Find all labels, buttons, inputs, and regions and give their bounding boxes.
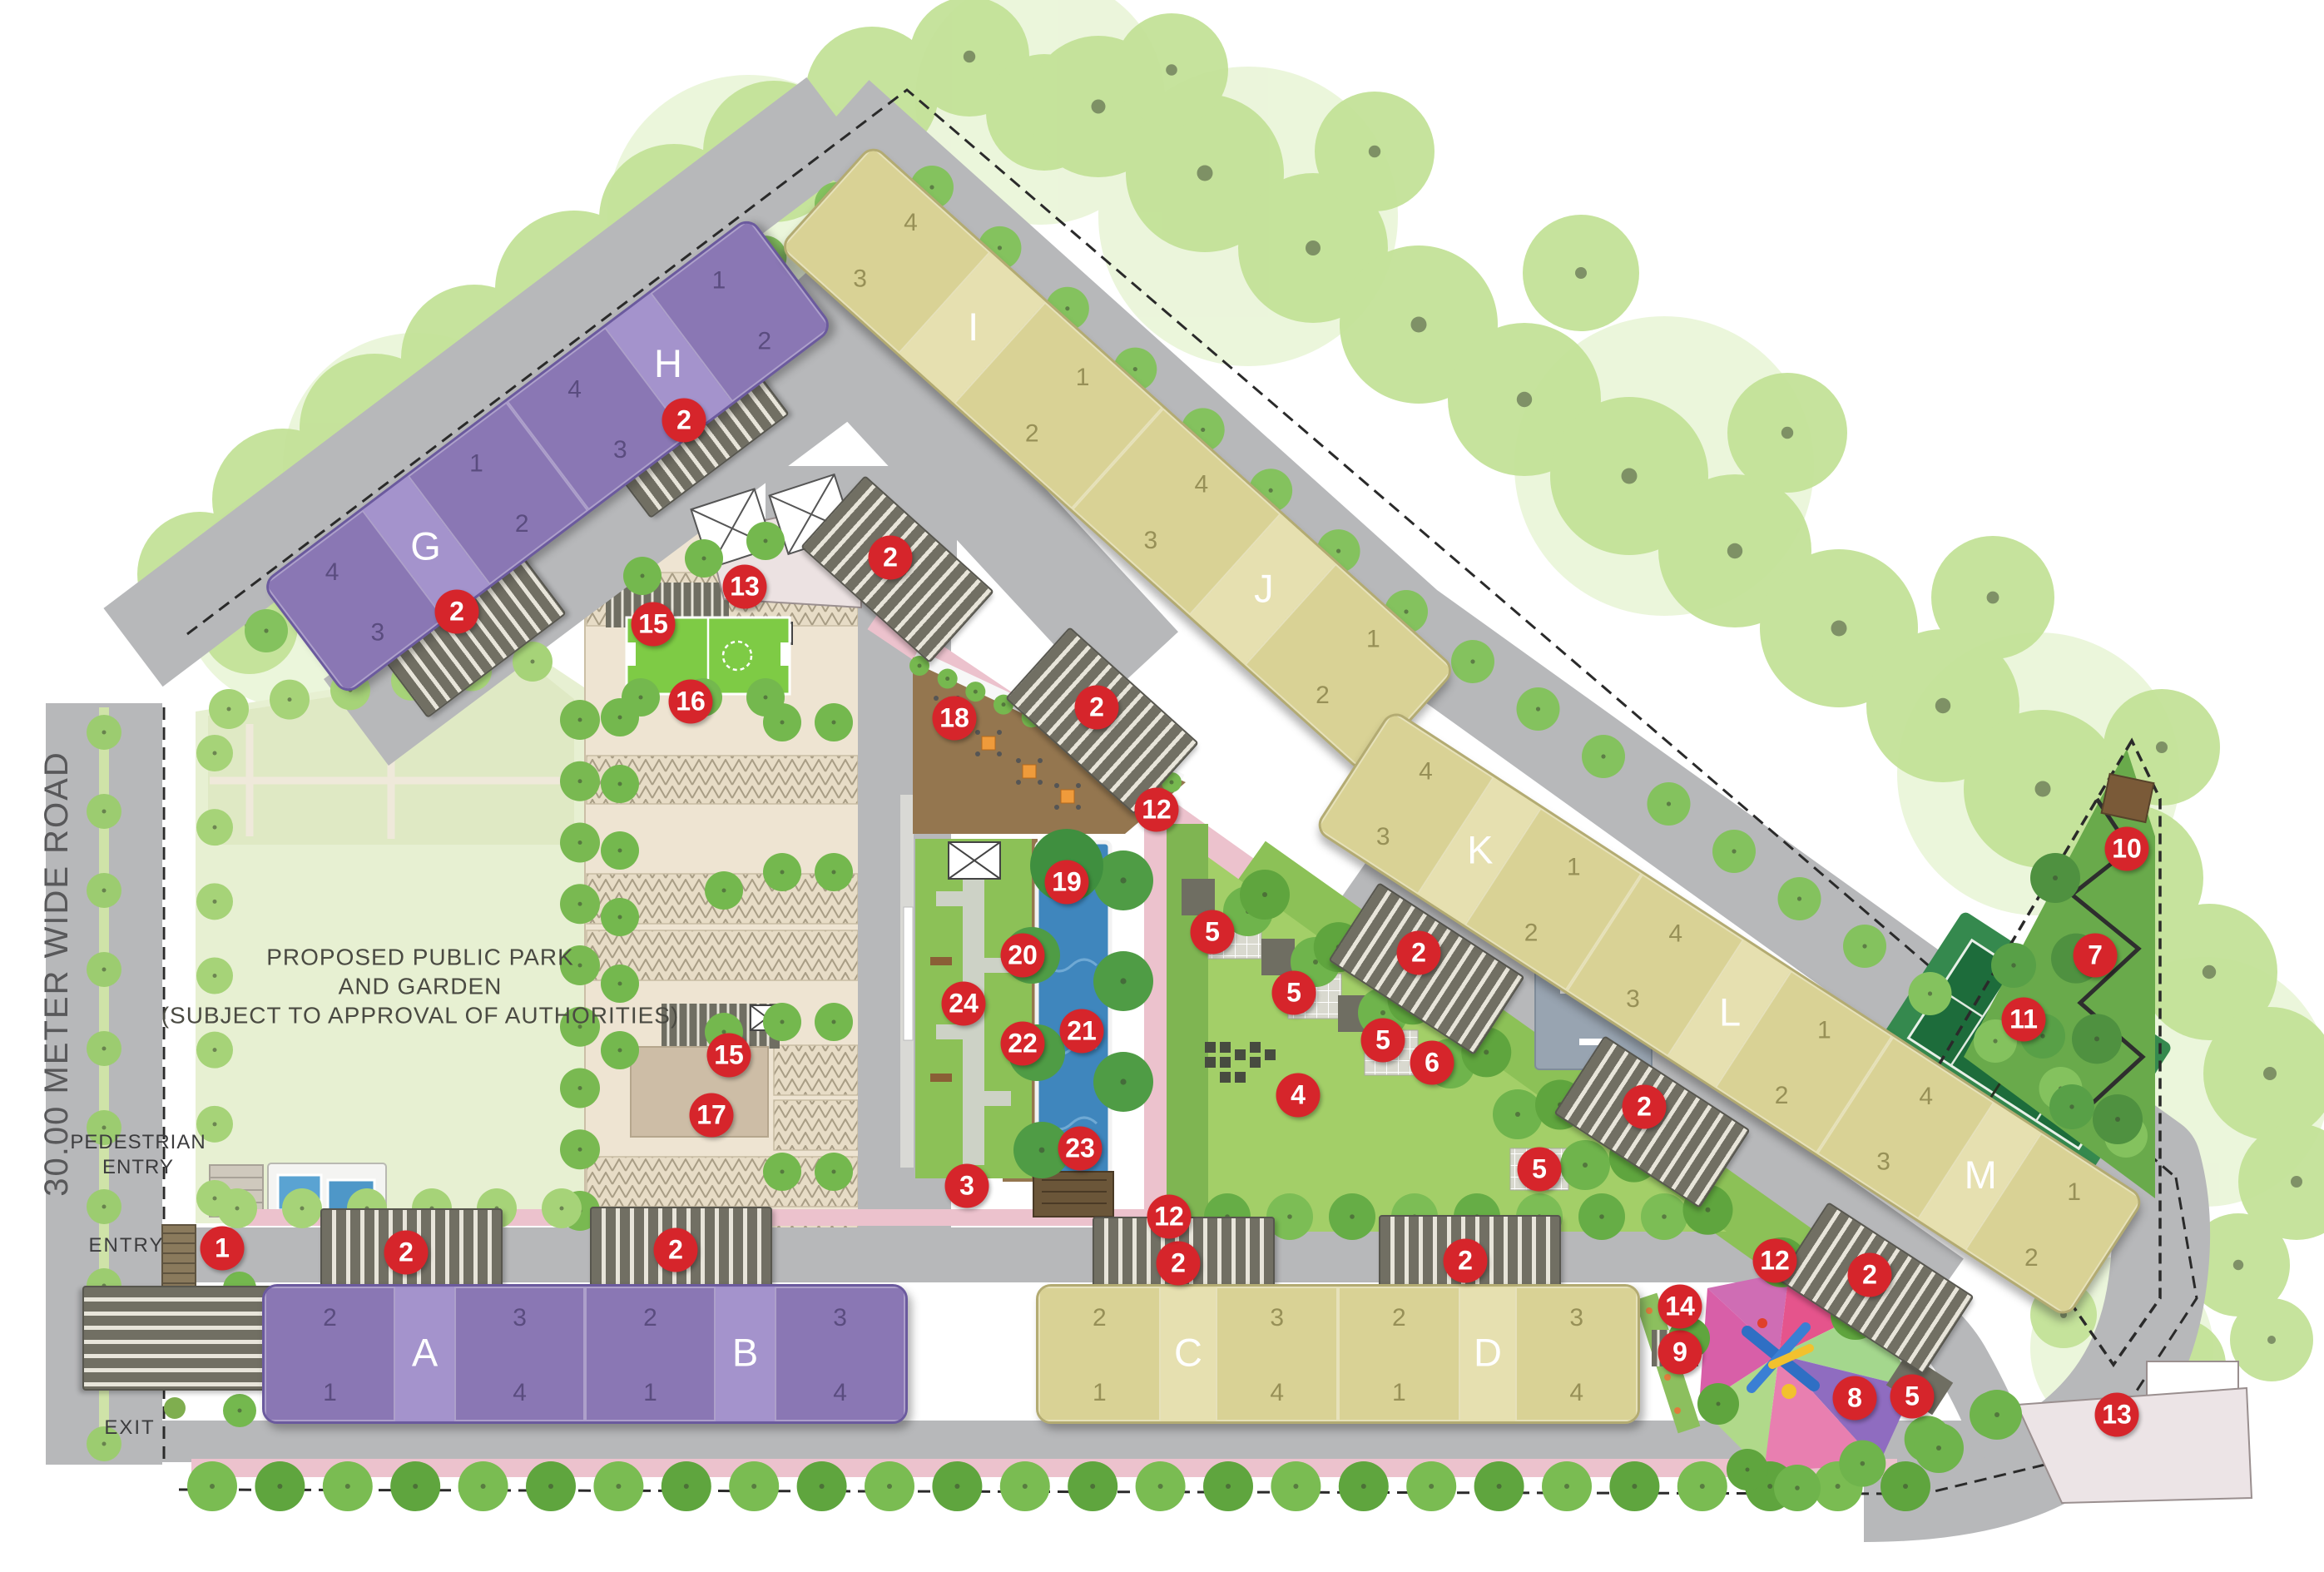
label-entry: ENTRY <box>89 1233 165 1258</box>
text-labels-layer: 30.00 METER WIDE ROADPEDESTRIAN ENTRYENT… <box>0 0 2324 1572</box>
label-pedestrian-entry: PEDESTRIAN ENTRY <box>70 1130 206 1180</box>
site-plan: 43G1243H1243I1243J1243K1243L1243M1221A34… <box>0 0 2324 1572</box>
label-exit: EXIT <box>104 1416 155 1441</box>
label-park-note: PROPOSED PUBLIC PARK AND GARDEN (SUBJECT… <box>161 943 680 1030</box>
